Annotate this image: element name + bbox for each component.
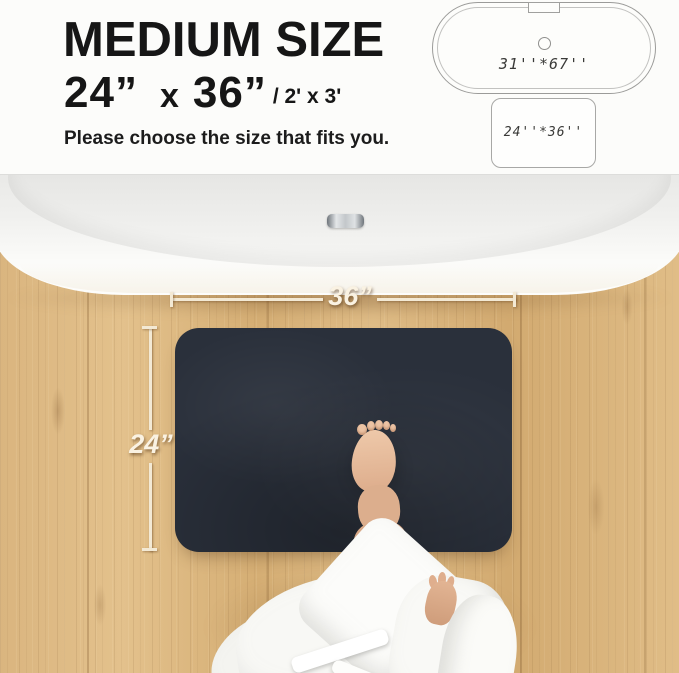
person-toe [357, 424, 367, 435]
size-primary: 24” [64, 68, 138, 117]
photo-section: 36” 24” [0, 174, 679, 673]
width-dimension-line-left [171, 298, 323, 301]
bathtub-size-label: 31''*67'' [433, 55, 655, 73]
mat-width-label: 36” [318, 281, 382, 312]
person-toe [383, 421, 390, 430]
person-toe [375, 420, 383, 430]
bathtub-overflow-fitting [327, 214, 364, 228]
bathtub-drain-icon [538, 37, 551, 50]
height-dimension-tick-top [142, 326, 157, 329]
mat-outline-diagram: 24''*36'' [491, 98, 596, 168]
header-section: MEDIUM SIZE 24”x36”/ 2' x 3' Please choo… [0, 0, 679, 174]
page-title: MEDIUM SIZE [63, 12, 384, 68]
width-dimension-tick-right [513, 292, 516, 307]
size-secondary: 36” [193, 68, 267, 117]
person-toe [367, 421, 375, 431]
bathtub [0, 174, 679, 295]
bathtub-outline-diagram: 31''*67'' [432, 2, 656, 94]
width-dimension-line-right [377, 298, 516, 301]
choose-size-subtitle: Please choose the size that fits you. [64, 128, 389, 150]
size-times: x [160, 77, 179, 115]
bathtub-faucet-notch [528, 2, 560, 13]
size-line: 24”x36”/ 2' x 3' [64, 68, 341, 118]
size-alternate: / 2' x 3' [273, 85, 341, 108]
height-dimension-line-bottom [149, 463, 152, 551]
mat-height-label: 24” [122, 429, 180, 460]
product-size-guide-image: MEDIUM SIZE 24”x36”/ 2' x 3' Please choo… [0, 0, 679, 673]
height-dimension-line-top [149, 327, 152, 430]
person-toe [390, 424, 396, 432]
mat-size-label: 24''*36'' [492, 125, 595, 140]
height-dimension-tick-bottom [142, 548, 157, 551]
width-dimension-tick-left [170, 292, 173, 307]
